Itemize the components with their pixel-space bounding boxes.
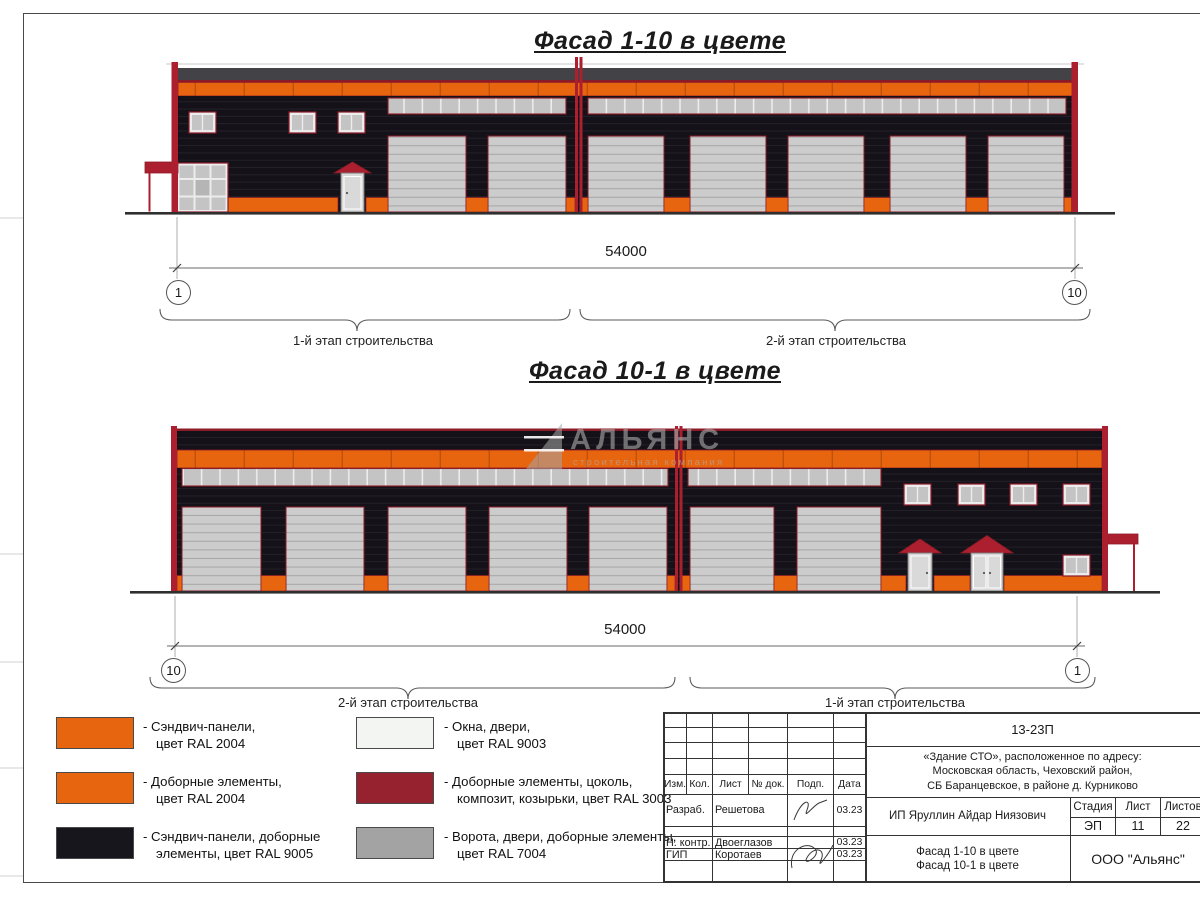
tb-name-developer: Решетова [715, 804, 765, 816]
legend-line: цвет RAL 2004 [143, 791, 282, 808]
tb-role-gip: ГИП [666, 849, 687, 861]
tb-listov-label: Листов [1161, 798, 1200, 816]
tb-role-developer: Разраб. [666, 804, 705, 816]
legend-swatch-trim-ral2004 [56, 772, 134, 804]
legend-line: элементы, цвет RAL 9005 [143, 846, 320, 863]
facade-2-stage-left-label: 2-й этап строительства [288, 695, 528, 710]
legend-swatch-trim-ral3003 [356, 772, 434, 804]
legend-label-trim-ral3003: - Доборные элементы, цоколь, композит, к… [444, 774, 671, 807]
tb-col-podp: Подп. [788, 775, 833, 793]
tb-border [663, 727, 865, 728]
facade-1-dimensions [160, 217, 1090, 331]
legend-label-sandwich-ral2004: - Сэндвич-панели, цвет RAL 2004 [143, 719, 255, 752]
legend-label-gates-ral7004: - Ворота, двери, доборные элементы, цвет… [444, 829, 676, 862]
tb-border [787, 712, 788, 882]
axis-marker-10-right: 10 [1062, 280, 1087, 305]
tb-date-developer: 03.23 [834, 804, 865, 817]
sheet-margin-lines [0, 218, 23, 876]
tb-col-data: Дата [834, 775, 865, 793]
legend-line: - Сэндвич-панели, доборные [143, 829, 320, 844]
tb-object-line: СБ Баранцевское, в районе д. Курниково [927, 779, 1138, 794]
tb-list-value: 11 [1116, 818, 1160, 834]
tb-object-line: «Здание СТО», расположенное по адресу: [923, 750, 1141, 765]
legend-line: - Сэндвич-панели, [143, 719, 255, 734]
tb-col-list: Лист [713, 775, 748, 793]
legend-line: - Доборные элементы, [143, 774, 282, 789]
tb-border [663, 794, 865, 795]
facade-1-elevation [125, 57, 1115, 215]
legend-swatch-windows-ral9003 [356, 717, 434, 749]
tb-border [712, 712, 713, 882]
legend-swatch-gates-ral7004 [356, 827, 434, 859]
tb-border [663, 881, 1200, 883]
tb-object-address: «Здание СТО», расположенное по адресу: М… [866, 747, 1199, 796]
legend-line: композит, козырьки, цвет RAL 3003 [444, 791, 671, 808]
signature-scribbles [791, 800, 833, 868]
tb-border [663, 712, 665, 882]
legend-line: цвет RAL 7004 [444, 846, 676, 863]
facade-1-stage-right-label: 2-й этап строительства [716, 333, 956, 348]
facade-1-stage-left-label: 1-й этап строительства [243, 333, 483, 348]
facade-2-stage-right-label: 1-й этап строительства [775, 695, 1015, 710]
tb-stage-label: Стадия [1071, 798, 1115, 816]
entrance-glazing [177, 163, 228, 212]
axis-marker-1-right: 1 [1065, 658, 1090, 683]
axis-marker-1-left: 1 [166, 280, 191, 305]
company-watermark [524, 421, 564, 476]
tb-border [663, 860, 865, 861]
right-canopy [1108, 534, 1138, 591]
facade-1-dimension-label: 54000 [526, 243, 726, 260]
tb-date-ncontrol: 03.23 [834, 837, 865, 848]
tb-drawing-title-line: Фасад 1-10 в цвете [916, 845, 1019, 859]
legend-line: - Ворота, двери, доборные элементы, [444, 829, 676, 844]
tb-client: ИП Яруллин Айдар Ниязович [866, 798, 1069, 834]
axis-marker-10-left: 10 [161, 658, 186, 683]
tb-stage-value: ЭП [1071, 818, 1115, 834]
tb-border [663, 742, 865, 743]
tb-company: ООО "Альянс" [1071, 836, 1200, 881]
watermark-subtitle: строительная компания [573, 457, 724, 468]
tb-col-kol: Кол. [687, 775, 712, 793]
tb-border [663, 826, 865, 827]
legend-label-trim-ral2004: - Доборные элементы, цвет RAL 2004 [143, 774, 282, 807]
facade-2-title: Фасад 10-1 в цвете [405, 357, 905, 386]
tb-role-ncontrol: Н. контр. [666, 837, 711, 849]
drawing-sheet: { "colors": { "orange": "#E7650E", "oran… [0, 0, 1200, 900]
facade-1-title: Фасад 1-10 в цвете [410, 27, 910, 56]
legend-line: цвет RAL 9003 [444, 736, 546, 753]
facade-2-dimensions [150, 596, 1095, 699]
watermark-triangle-logo [524, 421, 564, 471]
tb-name-gip: Коротаев [715, 849, 762, 861]
tb-drawing-titles: Фасад 1-10 в цвете Фасад 10-1 в цвете [866, 836, 1069, 881]
legend-line: цвет RAL 2004 [143, 736, 255, 753]
tb-col-doc: № док. [749, 775, 787, 793]
legend-line: - Доборные элементы, цоколь, [444, 774, 632, 789]
tb-col-izm: Изм. [664, 775, 686, 793]
tb-drawing-title-line: Фасад 10-1 в цвете [916, 859, 1019, 873]
tb-listov-value: 22 [1161, 818, 1200, 834]
facade-2-dimension-label: 54000 [525, 621, 725, 638]
legend-swatch-sandwich-ral2004 [56, 717, 134, 749]
watermark-name: АЛЬЯНС [570, 424, 724, 457]
legend-line: - Окна, двери, [444, 719, 530, 734]
legend-label-sandwich-ral9005: - Сэндвич-панели, доборные элементы, цве… [143, 829, 320, 862]
tb-date-gip: 03.23 [834, 849, 865, 860]
legend-label-windows-ral9003: - Окна, двери, цвет RAL 9003 [444, 719, 546, 752]
tb-doc-number: 13-23П [866, 713, 1199, 745]
legend-swatch-sandwich-ral9005 [56, 827, 134, 859]
tb-object-line: Московская область, Чеховский район, [933, 764, 1133, 779]
tb-border [663, 758, 865, 759]
tb-name-ncontrol: Двоеглазов [715, 837, 772, 849]
tb-list-label: Лист [1116, 798, 1160, 816]
